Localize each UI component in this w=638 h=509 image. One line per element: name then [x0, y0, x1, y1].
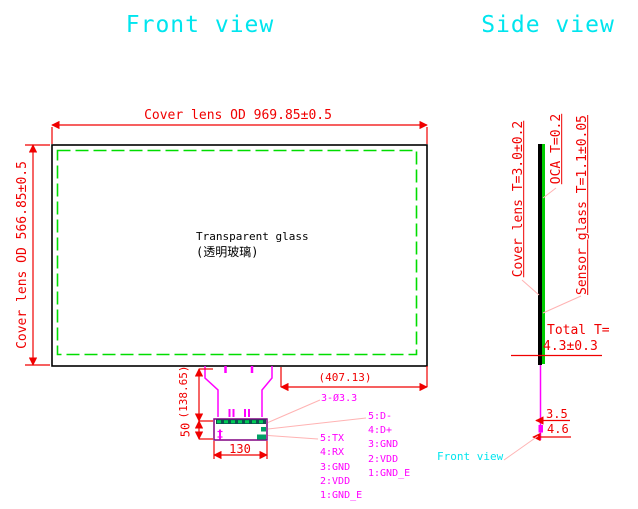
- uart-pin-label: 3:GND: [320, 462, 350, 473]
- dim-width-label: Cover lens OD 969.85±0.5: [144, 109, 332, 123]
- usb-pin-label: 2:VDD: [368, 454, 398, 465]
- leader-uart-pins: [268, 436, 318, 440]
- side-connector-block: [539, 425, 544, 433]
- side-cover-lens-bar: [538, 144, 542, 365]
- front-view-pointer-label: Front view: [437, 451, 503, 463]
- tail-outline-left: [205, 366, 218, 417]
- usb-pin-label: 1:GND_E: [368, 468, 410, 479]
- side-dim-b-label: 4.6: [547, 423, 569, 436]
- leader-sensor-glass: [543, 296, 581, 313]
- dim-connector-height-label: 50: [180, 423, 193, 437]
- uart-pin-label: 2:VDD: [320, 476, 350, 487]
- leader-front-view-pointer: [504, 436, 538, 460]
- connector-pad: [257, 435, 266, 440]
- usb-pin-label: 5:D-: [368, 411, 392, 422]
- uart-pin-label: 4:RX: [320, 447, 344, 458]
- dim-offset-label: (407.13): [319, 372, 372, 384]
- leader-cover-lens: [522, 280, 539, 295]
- leader-holes: [268, 400, 320, 423]
- total-thickness-value: 4.3±0.3: [543, 340, 598, 354]
- drawing-linework: [0, 0, 638, 509]
- uart-pin-label: 5:TX: [320, 433, 344, 444]
- side-oca-label: OCA T=0.2: [550, 114, 564, 184]
- side-view-title: Side view: [481, 13, 615, 37]
- side-sensor-glass-bar: [542, 144, 545, 364]
- leader-usb-pins: [268, 418, 366, 429]
- usb-pin-label: 4:D+: [368, 425, 392, 436]
- glass-label-cn: (透明玻璃): [196, 246, 258, 259]
- connector-pad: [261, 427, 266, 432]
- dim-connector-width-label: 130: [229, 443, 251, 456]
- tail-outline-right: [262, 366, 272, 417]
- side-cover-lens-label: Cover lens T=3.0±0.2: [512, 121, 526, 278]
- side-dim-a-label: 3.5: [546, 408, 568, 421]
- glass-label-en: Transparent glass: [196, 231, 309, 243]
- dim-height-label: Cover lens OD 566.85±0.5: [16, 161, 30, 349]
- total-thickness-label: Total T=: [547, 324, 610, 338]
- uart-pin-label: 1:GND_E: [320, 490, 362, 501]
- front-view-title: Front view: [126, 13, 274, 37]
- drawing-canvas: Front view Side view Cover lens OD 969.8…: [0, 0, 638, 509]
- side-sensor-glass-label: Sensor glass T=1.1±0.05: [576, 115, 590, 295]
- usb-pin-label: 3:GND: [368, 439, 398, 450]
- holes-label: 3-Ø3.3: [321, 394, 357, 405]
- dim-tail-length-label: (138.65): [178, 366, 190, 419]
